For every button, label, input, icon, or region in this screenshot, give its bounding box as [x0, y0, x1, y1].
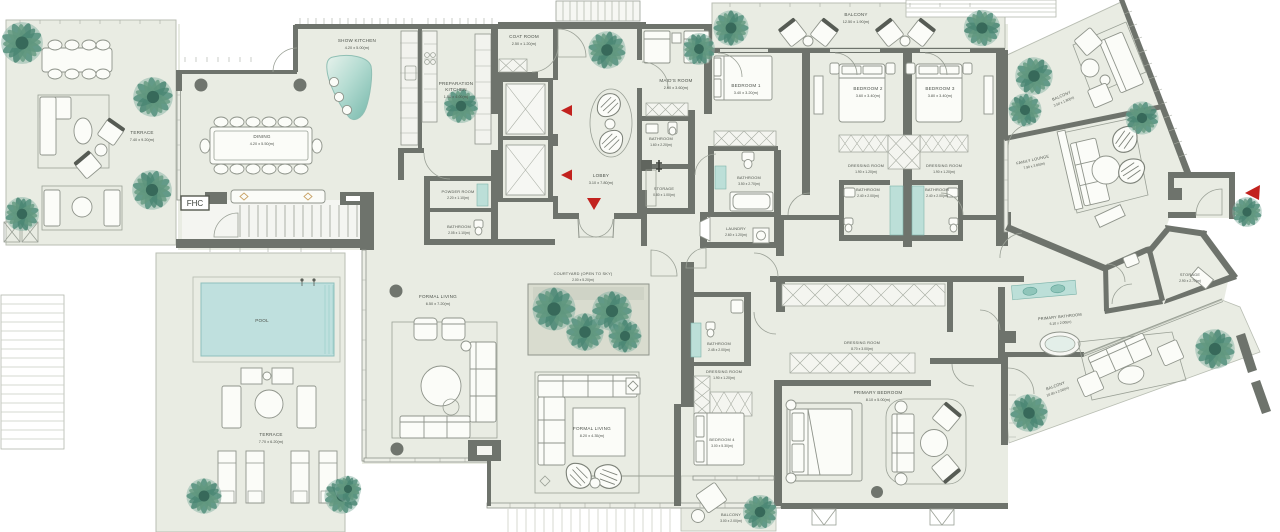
svg-text:2.60 x 3.60(m): 2.60 x 3.60(m) — [664, 86, 689, 90]
svg-text:FHC: FHC — [187, 199, 204, 208]
svg-text:3.10 x 7.80(m): 3.10 x 7.80(m) — [589, 181, 614, 185]
svg-text:3.00 x 5.30(m): 3.00 x 5.30(m) — [711, 444, 733, 448]
svg-text:2.45 x 2.00(m): 2.45 x 2.00(m) — [708, 348, 730, 352]
svg-text:3.00 x 2.00(m): 3.00 x 2.00(m) — [720, 519, 742, 523]
svg-text:2.50 x 1.20(m): 2.50 x 1.20(m) — [512, 42, 537, 46]
svg-text:COAT ROOM: COAT ROOM — [509, 34, 539, 39]
svg-text:7.70 x 6.20(m): 7.70 x 6.20(m) — [259, 440, 284, 444]
svg-text:BEDROOM 3: BEDROOM 3 — [925, 86, 955, 91]
svg-text:2.40 x 2.00(m): 2.40 x 2.00(m) — [857, 194, 879, 198]
svg-text:DRESSING ROOM: DRESSING ROOM — [706, 369, 742, 374]
svg-text:TERRACE: TERRACE — [130, 130, 153, 135]
svg-text:BEDROOM 4: BEDROOM 4 — [709, 437, 735, 442]
svg-text:BATHROOM: BATHROOM — [856, 187, 880, 192]
svg-text:BALCONY: BALCONY — [844, 12, 867, 17]
svg-text:3.80 x 3.40(m): 3.80 x 3.40(m) — [928, 94, 953, 98]
svg-text:2.05 x 1.10(m): 2.05 x 1.10(m) — [448, 231, 470, 235]
svg-text:DRESSING ROOM: DRESSING ROOM — [844, 340, 880, 345]
svg-text:PRIMARY BEDROOM: PRIMARY BEDROOM — [854, 390, 903, 395]
svg-text:3.40 x 3.20(m): 3.40 x 3.20(m) — [734, 91, 759, 95]
svg-text:BALCONY: BALCONY — [721, 512, 741, 517]
svg-text:BATHROOM: BATHROOM — [707, 341, 731, 346]
svg-text:POWDER ROOM: POWDER ROOM — [442, 189, 475, 194]
svg-text:7.40 x 9.20(m): 7.40 x 9.20(m) — [130, 138, 155, 142]
svg-text:KITCHEN: KITCHEN — [445, 87, 467, 92]
svg-text:2.20 x 1.10(m): 2.20 x 1.10(m) — [447, 196, 469, 200]
svg-text:1.50 x 4.00(m): 1.50 x 4.00(m) — [444, 95, 469, 99]
svg-text:TERRACE: TERRACE — [259, 432, 282, 437]
svg-text:3.50 x 2.70(m): 3.50 x 2.70(m) — [738, 182, 760, 186]
svg-text:8.70 x 3.00(m): 8.70 x 3.00(m) — [851, 347, 873, 351]
svg-text:12.50 x 1.90(m): 12.50 x 1.90(m) — [843, 20, 870, 24]
svg-text:FORMAL LIVING: FORMAL LIVING — [573, 426, 611, 431]
svg-text:2.00 x 5.20(m): 2.00 x 5.20(m) — [572, 278, 594, 282]
svg-text:1.60 x 2.20(m): 1.60 x 2.20(m) — [650, 143, 672, 147]
svg-text:4.20 x 5.00(m): 4.20 x 5.00(m) — [345, 46, 370, 50]
svg-text:STORAGE: STORAGE — [1180, 272, 1201, 277]
svg-text:MAID'S ROOM: MAID'S ROOM — [659, 78, 692, 83]
svg-text:0.80 x 1.00(m): 0.80 x 1.00(m) — [653, 193, 675, 197]
svg-text:2.90 x 2.70(m): 2.90 x 2.70(m) — [1179, 279, 1201, 283]
svg-text:LOBBY: LOBBY — [593, 173, 609, 178]
svg-text:DRESSING ROOM: DRESSING ROOM — [848, 163, 884, 168]
svg-text:SHOW KITCHEN: SHOW KITCHEN — [338, 38, 376, 43]
svg-text:BATHROOM: BATHROOM — [925, 187, 949, 192]
svg-text:PREPARATION: PREPARATION — [439, 81, 473, 86]
svg-text:1.90 x 1.20(m): 1.90 x 1.20(m) — [713, 376, 735, 380]
svg-text:2.60 x 1.20(m): 2.60 x 1.20(m) — [725, 233, 747, 237]
svg-text:BATHROOM: BATHROOM — [649, 136, 673, 141]
svg-text:BATHROOM: BATHROOM — [447, 224, 471, 229]
svg-text:8.10 x 5.00(m): 8.10 x 5.00(m) — [866, 398, 891, 402]
svg-text:COURTYARD (OPEN TO SKY): COURTYARD (OPEN TO SKY) — [554, 271, 613, 276]
svg-text:6.50 x 7.20(m): 6.50 x 7.20(m) — [426, 302, 451, 306]
svg-text:LAUNDRY: LAUNDRY — [726, 226, 746, 231]
svg-text:BATHROOM: BATHROOM — [737, 175, 761, 180]
svg-text:DINING: DINING — [253, 134, 271, 139]
svg-text:3.60 x 3.40(m): 3.60 x 3.40(m) — [856, 94, 881, 98]
svg-text:BEDROOM 1: BEDROOM 1 — [731, 83, 761, 88]
svg-text:BEDROOM 2: BEDROOM 2 — [853, 86, 883, 91]
svg-text:POOL: POOL — [255, 318, 269, 323]
svg-text:STORAGE: STORAGE — [654, 186, 675, 191]
svg-text:FORMAL LIVING: FORMAL LIVING — [419, 294, 457, 299]
svg-text:1.90 x 1.20(m): 1.90 x 1.20(m) — [933, 170, 955, 174]
svg-text:2.40 x 2.00(m): 2.40 x 2.00(m) — [926, 194, 948, 198]
svg-text:1.90 x 1.20(m): 1.90 x 1.20(m) — [855, 170, 877, 174]
svg-text:4.20 x 5.50(m): 4.20 x 5.50(m) — [250, 142, 275, 146]
svg-text:DRESSING ROOM: DRESSING ROOM — [926, 163, 962, 168]
svg-text:8.20 x 4.35(m): 8.20 x 4.35(m) — [580, 434, 605, 438]
